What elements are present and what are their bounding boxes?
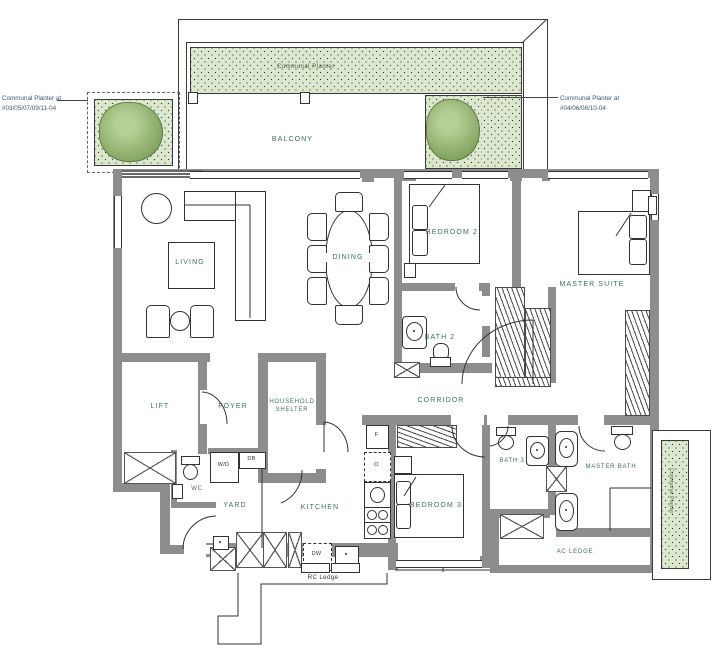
faucet-dot	[565, 446, 567, 448]
floor-plan: Communal Planter BALCONY Communal Plante…	[0, 0, 719, 654]
balcony-column	[188, 92, 198, 104]
nightstand	[394, 456, 412, 474]
yard-label: YARD	[210, 501, 260, 510]
right-planter-note: Communal Planter at #04/06/08/10-04	[560, 94, 652, 114]
right-leader-line	[483, 97, 558, 98]
sink-basin	[559, 438, 574, 458]
household-shelter-label: HOUSEHOLD SHELTER	[264, 398, 320, 414]
sink-basin	[370, 487, 385, 503]
door-gap	[487, 415, 508, 425]
dishwasher-label: DW	[303, 551, 330, 557]
wall	[113, 353, 122, 492]
wall	[160, 483, 170, 554]
shaft	[394, 362, 420, 378]
wall	[394, 178, 402, 371]
wardrobe	[397, 425, 457, 448]
window	[548, 171, 648, 179]
ac-ledge-label: AC LEDGE	[540, 548, 610, 556]
fridge-label: F	[366, 432, 387, 438]
rc-ledge-section	[301, 563, 330, 573]
bath2-label: BATH 2	[415, 333, 465, 342]
door-gap	[455, 283, 479, 291]
dining-chair	[369, 213, 389, 241]
wardrobe	[625, 310, 650, 416]
door-gap	[578, 415, 604, 425]
side-planter-strip	[661, 440, 689, 569]
counter-line	[610, 488, 651, 531]
window	[396, 560, 482, 568]
master-bath-label: MASTER BATH	[574, 463, 648, 471]
wc-label: WC	[186, 485, 208, 493]
bedroom3-label: BEDROOM 3	[400, 501, 472, 510]
shaft	[288, 532, 302, 568]
washer-dryer-label: W/D	[210, 462, 237, 468]
dining-chair	[307, 213, 327, 241]
wardrobe	[525, 308, 551, 379]
rc-ledge-label: RC Ledge	[292, 574, 354, 581]
nightstand	[648, 196, 657, 215]
window	[404, 171, 452, 179]
wall	[482, 423, 490, 565]
armchair	[146, 305, 170, 338]
pillow	[412, 205, 428, 230]
toilet-tank	[430, 357, 451, 367]
faucet-dot	[565, 509, 567, 511]
side-planter-label: Communal Planter	[668, 468, 674, 514]
dining-chair	[369, 277, 389, 305]
door-arc	[324, 422, 348, 452]
wc-sink	[172, 484, 183, 499]
hob-burner	[367, 510, 377, 520]
right-planter-strip	[481, 95, 522, 169]
dining-chair	[335, 192, 363, 212]
tree-icon	[99, 102, 163, 162]
boundary-line	[395, 568, 490, 572]
wall	[258, 473, 326, 483]
rc-ledge-section	[331, 563, 360, 573]
top-planter-label: Communal Planter	[277, 64, 335, 70]
toilet-bowl	[614, 434, 631, 450]
wardrobe	[495, 377, 551, 387]
shaft	[124, 452, 176, 484]
toilet-bowl	[183, 464, 198, 480]
wall	[258, 353, 326, 362]
wall	[495, 565, 655, 573]
sliding-door	[190, 171, 360, 179]
wardrobe	[495, 287, 525, 379]
plant-icon	[141, 193, 172, 224]
wall	[362, 171, 374, 182]
window	[114, 196, 122, 248]
shaft	[263, 532, 287, 568]
wall	[417, 363, 492, 373]
nightstand	[404, 263, 416, 278]
basin-dot	[345, 553, 347, 555]
faucet-dot	[413, 330, 415, 332]
door-arc	[579, 426, 605, 451]
faucet-dot	[536, 449, 538, 451]
shaft	[210, 547, 236, 571]
wall	[113, 353, 210, 362]
wall	[362, 415, 659, 425]
hob-burner	[378, 510, 388, 520]
lobby-outline	[218, 573, 387, 644]
top-planter-strip	[190, 47, 522, 94]
oven-label: O	[364, 462, 389, 468]
window	[462, 171, 508, 179]
side-table	[170, 311, 190, 331]
corridor-label: CORRIDOR	[408, 396, 474, 405]
armchair	[190, 305, 214, 338]
kitchen-label: KITCHEN	[290, 503, 350, 512]
balcony-column	[300, 92, 310, 104]
dining-label: DINING	[322, 253, 374, 262]
basin-dot	[219, 541, 221, 543]
lift-label: LIFT	[130, 402, 190, 411]
left-planter-note: Communal Planter at #03/05/07/09/11-04	[2, 94, 66, 114]
balcony-label: BALCONY	[255, 135, 330, 144]
tree-icon	[426, 99, 480, 161]
door-gap	[451, 415, 484, 425]
sofa	[235, 191, 266, 321]
db-label: DB	[239, 456, 264, 462]
yard-basin	[213, 536, 229, 550]
shaft	[546, 466, 567, 492]
door-gap	[482, 296, 490, 326]
hob-burner	[378, 525, 388, 535]
foyer-label: FOYER	[203, 402, 263, 411]
wall	[512, 178, 521, 288]
dining-chair	[307, 277, 327, 305]
hob-burner	[367, 525, 377, 535]
door-gap	[316, 425, 326, 469]
shaft	[236, 532, 264, 568]
shaft	[500, 514, 544, 539]
bath3-label: BATH 3	[487, 457, 537, 465]
dining-chair	[335, 305, 363, 325]
master-suite-label: MASTER SUITE	[548, 280, 636, 289]
toilet-bowl	[498, 435, 514, 450]
bedroom2-label: BEDROOM 2	[417, 228, 487, 237]
pillow	[629, 215, 647, 239]
left-leader-line	[57, 100, 88, 101]
tub-basin	[559, 500, 574, 522]
living-label: LIVING	[160, 258, 220, 267]
pillow	[629, 239, 647, 265]
wall	[510, 170, 522, 181]
